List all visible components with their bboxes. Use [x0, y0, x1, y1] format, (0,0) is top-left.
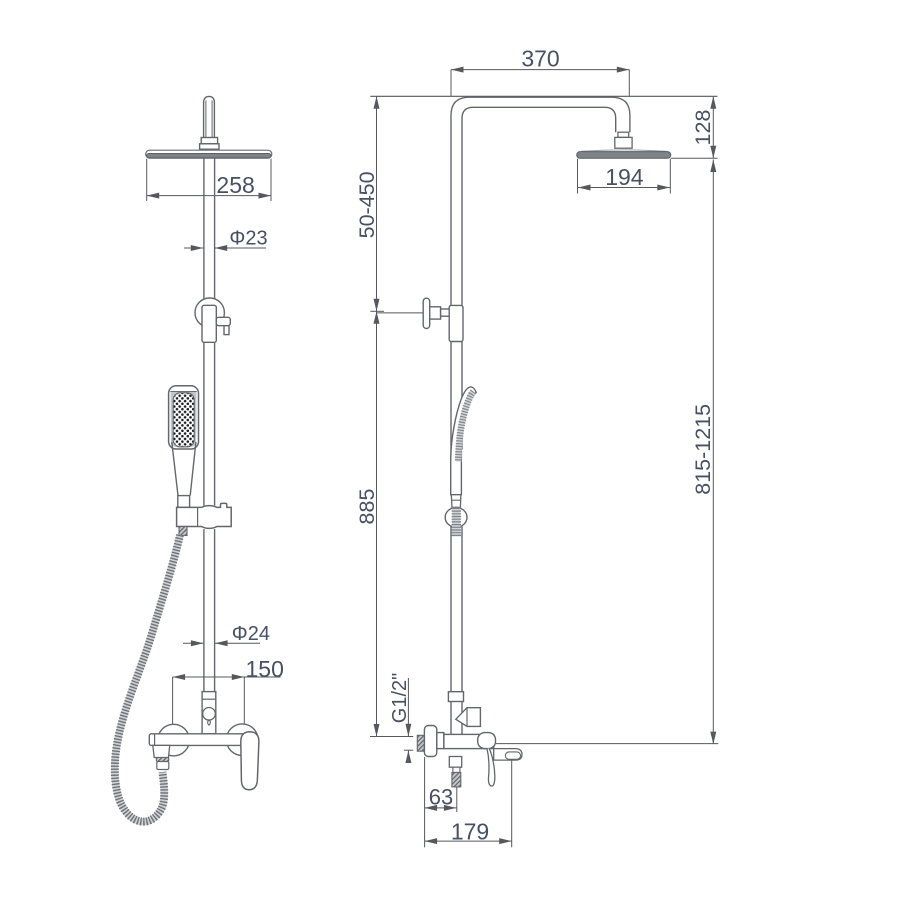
svg-text:128: 128	[691, 110, 715, 146]
svg-text:63: 63	[429, 785, 453, 810]
svg-text:194: 194	[605, 164, 644, 190]
svg-text:Φ24: Φ24	[232, 623, 270, 645]
svg-text:179: 179	[451, 819, 489, 845]
svg-text:885: 885	[355, 489, 379, 525]
svg-text:50-450: 50-450	[355, 171, 379, 238]
svg-text:150: 150	[246, 656, 284, 682]
svg-text:Φ23: Φ23	[229, 228, 267, 250]
svg-text:G1/2": G1/2"	[389, 673, 411, 723]
svg-text:370: 370	[521, 46, 559, 72]
svg-text:258: 258	[216, 172, 254, 198]
svg-text:815-1215: 815-1215	[691, 404, 715, 495]
